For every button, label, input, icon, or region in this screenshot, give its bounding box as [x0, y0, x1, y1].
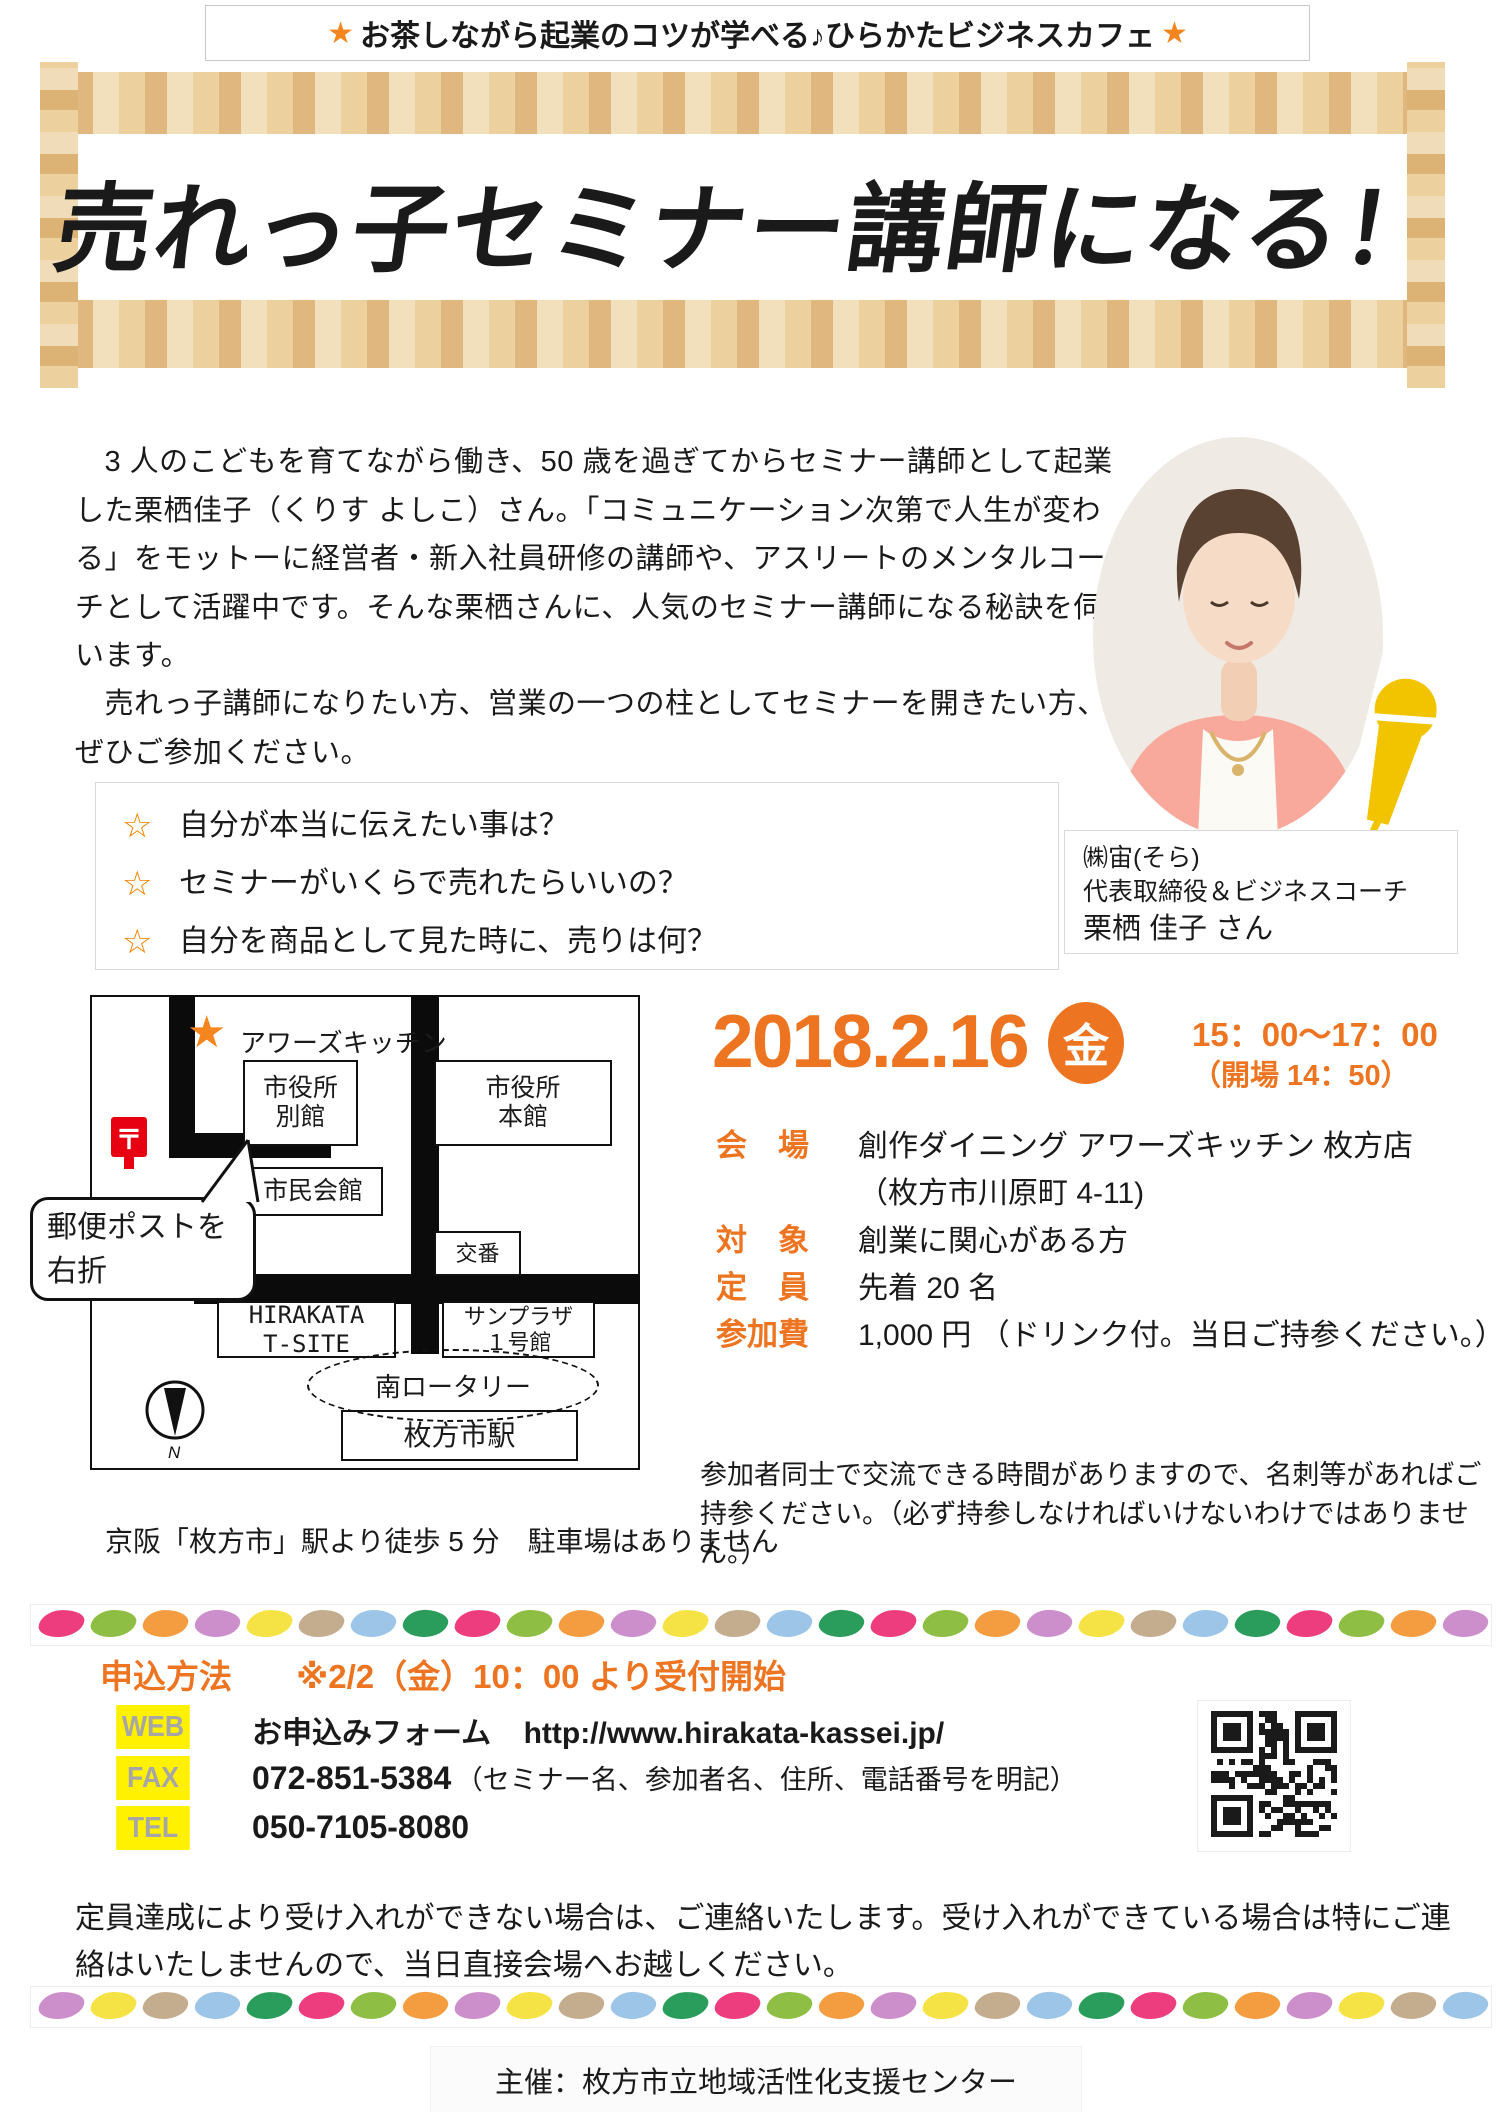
divider-brush-stroke — [608, 1991, 659, 2020]
intro-paragraph-1: 3 人のこどもを育てながら働き、50 歳を過ぎてからセミナー講師として起業した栗… — [75, 438, 1115, 681]
divider-brush-stroke — [661, 1609, 710, 1638]
fax-number: 072-851-5384 — [252, 1760, 451, 1796]
divider-brush-stroke — [192, 1609, 243, 1638]
divider-brush-stroke — [192, 1991, 243, 2020]
map-venue-label: アワーズキッチン — [240, 1023, 447, 1060]
bubble-tail — [200, 1136, 262, 1204]
divider-brush-stroke — [972, 1992, 1022, 2020]
map-building-main-hall: 市役所 本館 — [434, 1060, 612, 1146]
divider-brush-stroke — [713, 1610, 762, 1638]
map-building-police-box: 交番 — [434, 1231, 521, 1276]
divider-brush-stroke — [37, 1991, 86, 2020]
divider-brush-stroke — [713, 1992, 762, 2020]
checklist-item-text: 自分が本当に伝えたい事は？ — [179, 809, 569, 842]
detail-label-target: 対 象 — [716, 1215, 809, 1260]
compass-n-label: N — [168, 1443, 181, 1462]
intro-paragraph-2: 売れっ子講師になりたい方、営業の一つの柱としてセミナーを開きたい方、ぜひご参加く… — [75, 680, 1115, 777]
divider-brush-stroke — [661, 1991, 710, 2020]
divider-brush-stroke — [1232, 1991, 1283, 2020]
divider-brush-stroke — [89, 1610, 138, 1638]
checklist-item-text: 自分を商品として見た時に、売りは何？ — [179, 925, 717, 958]
divider-brush-stroke — [89, 1992, 138, 2020]
divider-brush-stroke — [1285, 1991, 1334, 2020]
organizer-footer: 主催：枚方市立地域活性化支援センター — [430, 2046, 1082, 2112]
event-date: 2018.2.16 — [712, 998, 1028, 1084]
detail-value-venue: 創作ダイニング アワーズキッチン 枚方店 — [858, 1121, 1413, 1165]
application-start-note: ※2/2（金）10：00 より受付開始 — [296, 1658, 786, 1695]
web-contact-line: お申込みフォーム http://www.hirakata-kassei.jp/ — [252, 1708, 944, 1752]
map-venue-star-icon: ★ — [187, 1011, 226, 1055]
divider-brush-stroke — [505, 1610, 554, 1638]
map-building-t-site: HIRAKATA T-SITE — [217, 1301, 396, 1358]
fax-contact-line: 072-851-5384 （セミナー名、参加者名、住所、電話番号を明記） — [252, 1758, 1077, 1797]
divider-brush-stroke — [505, 1992, 554, 2020]
divider-brush-stroke — [921, 1992, 970, 2020]
divider-brush-stroke — [1440, 1609, 1491, 1638]
tape-strip-top — [45, 72, 1445, 134]
checklist-item: ☆ 自分が本当に伝えたい事は？ — [122, 800, 569, 846]
divider-brush-stroke — [1077, 1991, 1126, 2020]
event-weekday-badge: 金 — [1048, 1002, 1124, 1084]
divider-brush-stroke — [297, 1992, 346, 2020]
star-icon: ★ — [327, 16, 354, 51]
capacity-note: 定員達成により受け入れができない場合は、ご連絡いたします。受け入れができている場… — [75, 1895, 1475, 1989]
fax-note: （セミナー名、参加者名、住所、電話番号を明記） — [456, 1765, 1077, 1795]
divider-brush-stroke — [869, 1609, 918, 1638]
speaker-role: 代表取締役＆ビジネスコーチ — [1083, 875, 1457, 909]
divider-brush-stroke — [1337, 1610, 1386, 1638]
tel-label-badge: TEL — [116, 1806, 190, 1850]
web-label-badge: WEB — [116, 1705, 190, 1749]
divider-brush-stroke — [1180, 1610, 1230, 1638]
divider-brush-stroke — [608, 1609, 659, 1638]
tel-contact-line: 050-7105-8080 — [252, 1809, 469, 1846]
divider-brush-stroke — [1440, 1991, 1491, 2020]
map-rotary-label: 南ロータリー — [307, 1349, 599, 1422]
detail-label-venue: 会 場 — [716, 1120, 809, 1165]
application-heading-label: 申込方法 — [100, 1658, 232, 1695]
divider-brush-stroke — [1337, 1992, 1386, 2020]
divider-brush-stroke — [453, 1991, 502, 2020]
divider-brush-stroke — [1077, 1609, 1126, 1638]
map-caption: 京阪「枚方市」駅より徒歩 5 分 駐車場はありません — [105, 1520, 779, 1560]
checklist-item: ☆ セミナーがいくらで売れたらいいの？ — [122, 858, 688, 904]
divider-brush-stroke — [1129, 1610, 1178, 1638]
divider-brush-stroke — [1024, 1991, 1075, 2020]
qr-code — [1197, 1700, 1351, 1852]
speaker-caption-box: ㈱宙(そら) 代表取締役＆ビジネスコーチ 栗栖 佳子 さん — [1064, 830, 1458, 954]
detail-value-capacity: 先着 20 名 — [858, 1263, 998, 1307]
divider-brush-stroke — [816, 1609, 867, 1638]
divider-brush-stroke — [453, 1609, 502, 1638]
top-banner-text: お茶しながら起業のコツが学べる♪ひらかたビジネスカフェ — [360, 11, 1155, 55]
postal-mark-icon: 〒 — [111, 1117, 147, 1157]
divider-brush-stroke — [556, 1992, 606, 2020]
postal-mark-stem — [124, 1157, 134, 1169]
divider-brush-stroke — [37, 1609, 86, 1638]
divider-brush-stroke — [1388, 1992, 1438, 2020]
speaker-name: 栗栖 佳子 さん — [1083, 909, 1457, 949]
divider-brush-stroke — [400, 1609, 451, 1638]
star-outline-icon: ☆ — [122, 807, 152, 845]
fax-label-badge: FAX — [116, 1756, 190, 1800]
divider-brush-stroke — [921, 1610, 970, 1638]
organizer-text: 主催：枚方市立地域活性化支援センター — [495, 2059, 1017, 2101]
event-time: 15：00～17：00 — [1192, 1008, 1438, 1056]
map-building-annex: 市役所 別館 — [243, 1060, 358, 1146]
compass-north-icon: N — [140, 1374, 210, 1462]
divider-brush-stroke — [297, 1610, 346, 1638]
speaker-company: ㈱宙(そら) — [1083, 841, 1457, 875]
divider-brush-stroke — [1285, 1609, 1334, 1638]
detail-value-fee: 1,000 円 （ドリンク付。当日ご持参ください。） — [858, 1310, 1500, 1354]
tel-number: 050-7105-8080 — [252, 1809, 469, 1845]
web-form-text: お申込みフォーム — [252, 1717, 491, 1750]
event-doors-open: （開場 14：50） — [1192, 1052, 1410, 1094]
divider-brush-stroke — [764, 1610, 814, 1638]
flyer-page: ★ お茶しながら起業のコツが学べる♪ひらかたビジネスカフェ ★ 売れっ子セミナー… — [0, 0, 1500, 2112]
top-banner: ★ お茶しながら起業のコツが学べる♪ひらかたビジネスカフェ ★ — [205, 5, 1310, 61]
decorative-divider — [30, 1604, 1492, 1646]
detail-value-address: （枚方市川原町 4-11) — [858, 1168, 1144, 1212]
page-title: 売れっ子セミナー講師になる！ — [79, 142, 1421, 298]
divider-brush-stroke — [245, 1991, 294, 2020]
divider-brush-stroke — [1232, 1609, 1283, 1638]
web-form-url: http://www.hirakata-kassei.jp/ — [524, 1717, 945, 1750]
detail-label-fee: 参加費 — [716, 1309, 809, 1354]
star-outline-icon: ☆ — [122, 923, 152, 961]
divider-brush-stroke — [400, 1991, 451, 2020]
decorative-divider — [30, 1986, 1492, 2028]
divider-brush-stroke — [140, 1992, 190, 2020]
tape-strip-bottom — [45, 300, 1445, 368]
divider-brush-stroke — [245, 1609, 294, 1638]
map-road — [194, 1274, 640, 1304]
application-heading: 申込方法 ※2/2（金）10：00 より受付開始 — [100, 1650, 786, 1698]
divider-brush-stroke — [348, 1992, 398, 2020]
star-icon: ★ — [1161, 16, 1188, 51]
divider-brush-stroke — [816, 1991, 867, 2020]
map-direction-bubble: 郵便ポストを 右折 — [30, 1197, 256, 1301]
divider-brush-stroke — [1129, 1992, 1178, 2020]
divider-brush-stroke — [348, 1610, 398, 1638]
star-outline-icon: ☆ — [122, 865, 152, 903]
divider-brush-stroke — [556, 1610, 606, 1638]
divider-brush-stroke — [1024, 1609, 1075, 1638]
checklist-item-text: セミナーがいくらで売れたらいいの？ — [179, 867, 688, 900]
divider-brush-stroke — [972, 1610, 1022, 1638]
divider-brush-stroke — [1388, 1610, 1438, 1638]
detail-value-target: 創業に関心がある方 — [858, 1216, 1128, 1260]
checklist-item: ☆ 自分を商品として見た時に、売りは何？ — [122, 916, 717, 962]
exchange-note: 参加者同士で交流できる時間がありますので、名刺等があればご持参ください。（必ず持… — [700, 1456, 1490, 1573]
detail-label-capacity: 定 員 — [716, 1262, 809, 1307]
divider-brush-stroke — [140, 1610, 190, 1638]
map-building-civic-hall: 市民会館 — [243, 1167, 383, 1216]
divider-brush-stroke — [1180, 1992, 1230, 2020]
divider-brush-stroke — [764, 1992, 814, 2020]
divider-brush-stroke — [869, 1991, 918, 2020]
